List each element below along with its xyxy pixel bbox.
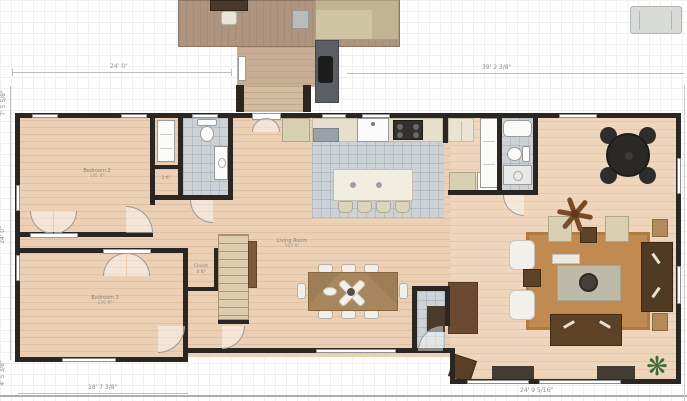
dim-label-bottom-right: 24' 9 5/16" xyxy=(520,388,553,394)
outdoor-unit[interactable] xyxy=(630,6,682,34)
wall xyxy=(15,248,188,253)
burner xyxy=(397,124,403,130)
outdoor-unit-line xyxy=(639,11,640,30)
bar-stool[interactable] xyxy=(338,201,353,213)
dim-line-top-left xyxy=(12,72,232,73)
room-area: 145 ft² xyxy=(62,174,132,180)
living-room-label: Living Room 507 ft² xyxy=(262,238,322,250)
dim-label-left-upper: 7' 5 5/8" xyxy=(1,90,7,116)
burner xyxy=(397,132,403,138)
table-dish xyxy=(323,287,337,296)
entry-steps[interactable] xyxy=(244,86,303,112)
accent-chair[interactable] xyxy=(605,216,629,242)
great-room-ceiling-fan[interactable] xyxy=(557,196,593,232)
linen-cabinet[interactable] xyxy=(157,120,175,162)
porch-post-right xyxy=(303,85,311,112)
shelf-line xyxy=(160,134,172,135)
island-sink xyxy=(350,182,356,188)
grill[interactable] xyxy=(318,56,333,83)
dim-line-top-right xyxy=(347,73,684,74)
sofa-pillow xyxy=(563,320,575,329)
wall xyxy=(183,248,188,362)
island-sink xyxy=(376,182,382,188)
bar-stool[interactable] xyxy=(395,201,410,213)
floor-plan-canvas: 24' 0" 39' 2 3/8" 7' 5 5/8" 24' 0" 4' 5 … xyxy=(0,0,687,401)
wall xyxy=(150,165,181,169)
stove[interactable] xyxy=(393,120,423,140)
stair-railing xyxy=(248,241,257,288)
closet-area: 4 ft² xyxy=(189,270,213,276)
outdoor-table[interactable] xyxy=(210,0,248,11)
outdoor-sectional-sofa[interactable] xyxy=(315,0,399,40)
shelf-line xyxy=(483,141,495,142)
staircase[interactable] xyxy=(218,234,249,320)
dining-ceiling-fan[interactable] xyxy=(336,277,366,307)
shelf-line xyxy=(160,148,172,149)
window[interactable] xyxy=(559,114,597,118)
sofa-pillow xyxy=(651,287,660,299)
window[interactable] xyxy=(32,114,58,118)
wall xyxy=(676,113,681,384)
dining-chair[interactable] xyxy=(364,310,379,319)
dim-tick xyxy=(231,69,232,76)
sofa-back-cushion xyxy=(316,1,398,10)
toilet-bowl[interactable] xyxy=(507,147,522,161)
bedroom2-label: Bedroom 2 145 ft² xyxy=(62,168,132,180)
coffee-table[interactable] xyxy=(579,273,598,292)
sink-basin xyxy=(513,171,523,181)
end-table[interactable] xyxy=(652,219,668,237)
sofa-pillow xyxy=(651,253,660,265)
sofa-pillow xyxy=(599,320,611,329)
dim-line-bottom-left xyxy=(18,393,188,394)
fan-hub xyxy=(347,288,355,296)
outdoor-unit-line xyxy=(671,11,672,30)
canvas-bottom-edge xyxy=(0,395,687,397)
window[interactable] xyxy=(322,114,346,118)
window[interactable] xyxy=(677,266,681,304)
dining-chair[interactable] xyxy=(297,283,306,299)
white-armchair[interactable] xyxy=(509,240,535,270)
window[interactable] xyxy=(539,380,621,384)
wall xyxy=(15,113,20,362)
wall xyxy=(188,287,218,291)
wall xyxy=(150,113,155,205)
dining-chair[interactable] xyxy=(341,310,356,319)
wall xyxy=(443,113,448,143)
kitchen-island[interactable] xyxy=(333,169,413,201)
window[interactable] xyxy=(16,255,20,281)
refrigerator[interactable] xyxy=(448,118,474,142)
kitchen-sink[interactable] xyxy=(357,118,389,142)
toilet-bowl xyxy=(200,126,214,142)
canvas-right-edge xyxy=(684,85,685,401)
dim-label-top-left: 24' 0" xyxy=(110,64,128,70)
wall xyxy=(228,113,233,197)
wall xyxy=(445,286,450,326)
window[interactable] xyxy=(362,114,390,118)
fan-hub xyxy=(571,210,579,218)
bathroom2-vanity[interactable] xyxy=(503,165,532,185)
outdoor-chair[interactable] xyxy=(221,11,237,25)
wall xyxy=(533,113,538,195)
deck-storage-box[interactable] xyxy=(292,10,309,29)
wall xyxy=(214,248,218,290)
stair-note-tag xyxy=(238,56,246,81)
dishwasher[interactable] xyxy=(313,128,339,142)
dim-label-top-right: 39' 2 3/8" xyxy=(482,65,511,71)
wall xyxy=(218,320,249,324)
white-armchair[interactable] xyxy=(509,290,535,320)
kitchen-cabinet[interactable] xyxy=(449,172,476,192)
bedroom3-label: Bedroom 3 176 ft² xyxy=(70,295,140,307)
dining-chair[interactable] xyxy=(318,310,333,319)
window[interactable] xyxy=(316,349,396,353)
table-center xyxy=(625,152,633,160)
wall xyxy=(497,113,502,195)
dining-chair[interactable] xyxy=(399,283,408,299)
toilet-tank xyxy=(522,146,530,162)
window[interactable] xyxy=(121,114,147,118)
bathtub[interactable] xyxy=(503,120,532,137)
room-area: 507 ft² xyxy=(262,244,322,250)
dim-label-left-middle: 24' 0" xyxy=(0,226,6,244)
window[interactable] xyxy=(62,358,116,362)
wall xyxy=(178,113,183,199)
wall xyxy=(448,190,538,195)
bench[interactable] xyxy=(552,254,580,264)
window[interactable] xyxy=(467,380,529,384)
end-table[interactable] xyxy=(652,313,668,331)
burner xyxy=(413,124,419,130)
dim-tick xyxy=(12,69,13,76)
side-table[interactable] xyxy=(523,269,541,287)
room-area: 176 ft² xyxy=(70,301,140,307)
fridge-door-line xyxy=(461,121,462,141)
sofa[interactable] xyxy=(550,314,622,346)
faucet xyxy=(371,122,375,126)
wall xyxy=(412,286,417,348)
round-table[interactable] xyxy=(606,133,650,177)
wall xyxy=(450,348,455,384)
potted-plant[interactable]: ❋ xyxy=(643,353,671,381)
closet-label: Closet 4 ft² xyxy=(189,264,213,276)
dim-label-left-lower: 4' 5 3/8" xyxy=(0,360,6,386)
entry-rug[interactable] xyxy=(448,282,478,334)
walkway[interactable] xyxy=(237,47,317,87)
sink-basin xyxy=(218,158,226,168)
sofa-chaise xyxy=(372,10,398,39)
window[interactable] xyxy=(192,114,218,118)
entry-closet[interactable] xyxy=(282,118,310,142)
porch-post-left xyxy=(236,85,244,112)
hall-closet[interactable] xyxy=(480,118,498,188)
burner xyxy=(413,132,419,138)
dim-label-bottom-left: 18' 7 3/8" xyxy=(88,385,117,391)
bathroom1-vanity[interactable] xyxy=(214,146,228,180)
bar-stool[interactable] xyxy=(376,201,391,213)
bar-stool[interactable] xyxy=(357,201,372,213)
linen-closet-label: 3 ft² xyxy=(155,176,177,182)
toilet-tank[interactable] xyxy=(197,119,217,126)
dim-line-left xyxy=(10,86,11,360)
shelf-line xyxy=(483,164,495,165)
window[interactable] xyxy=(677,158,681,194)
sofa-right[interactable] xyxy=(641,242,673,312)
window[interactable] xyxy=(16,185,20,211)
